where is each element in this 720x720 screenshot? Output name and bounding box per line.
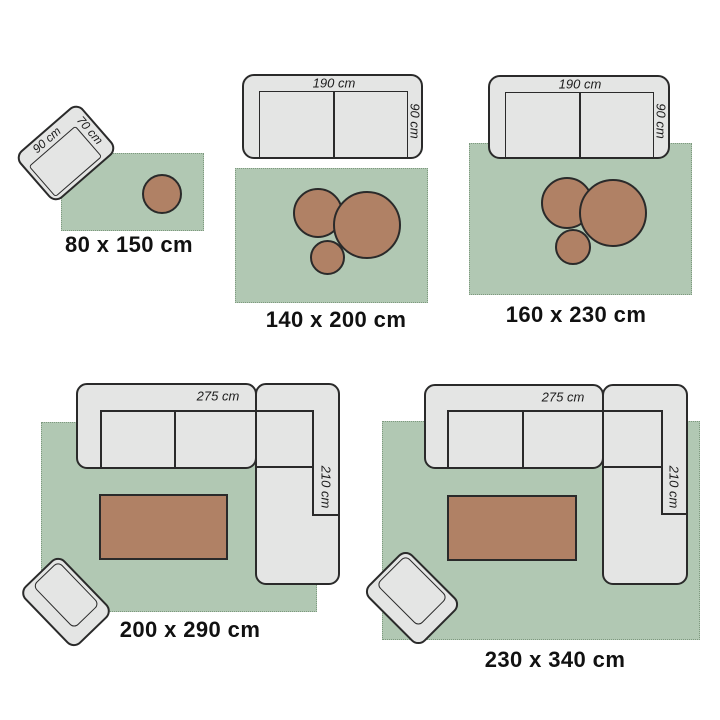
round-side-table (142, 174, 182, 214)
size-label: 80 x 150 cm (65, 234, 193, 256)
sofa-seat-divider (579, 92, 581, 159)
sectional-backrest-line (447, 410, 662, 412)
round-coffee-table-large (579, 179, 647, 247)
sofa-depth-label: 90 cm (655, 103, 668, 138)
sofa-width-label: 190 cm (559, 78, 602, 91)
chaise-band-bottom-line (661, 513, 688, 515)
sofa-two-seater: 190 cm 90 cm (242, 74, 423, 159)
sectional-depth-label: 210 cm (668, 466, 681, 509)
rug-size-guide: 90 cm 70 cm 80 x 150 cm 190 cm 90 cm 140… (0, 0, 720, 720)
sectional-seat-bottom-line (255, 466, 313, 468)
sectional-seat-bottom-line (602, 466, 662, 468)
sofa-width-label: 190 cm (313, 77, 356, 90)
sectional-width-label: 275 cm (542, 391, 585, 404)
sectional-backrest-line (100, 410, 313, 412)
sectional-armrest-line (100, 410, 102, 467)
sectional-armrest-line (447, 410, 449, 467)
size-label: 230 x 340 cm (485, 649, 626, 671)
sectional-seat-divider (522, 410, 524, 467)
size-label: 200 x 290 cm (120, 619, 261, 641)
size-label: 140 x 200 cm (266, 309, 407, 331)
coffee-table (447, 495, 577, 561)
chaise-band-bottom-line (312, 514, 340, 516)
sectional-depth-label: 210 cm (320, 466, 333, 509)
sectional-seat-divider (174, 410, 176, 467)
size-label: 160 x 230 cm (506, 304, 647, 326)
round-coffee-table-small (555, 229, 591, 265)
round-coffee-table-small (310, 240, 345, 275)
sofa-seat-divider (333, 91, 335, 159)
sectional-width-label: 275 cm (197, 390, 240, 403)
coffee-table (99, 494, 228, 560)
sofa-depth-label: 90 cm (409, 103, 422, 138)
sofa-two-seater: 190 cm 90 cm (488, 75, 670, 159)
chaise-inner-line (661, 410, 663, 515)
chaise-inner-line (312, 410, 314, 516)
